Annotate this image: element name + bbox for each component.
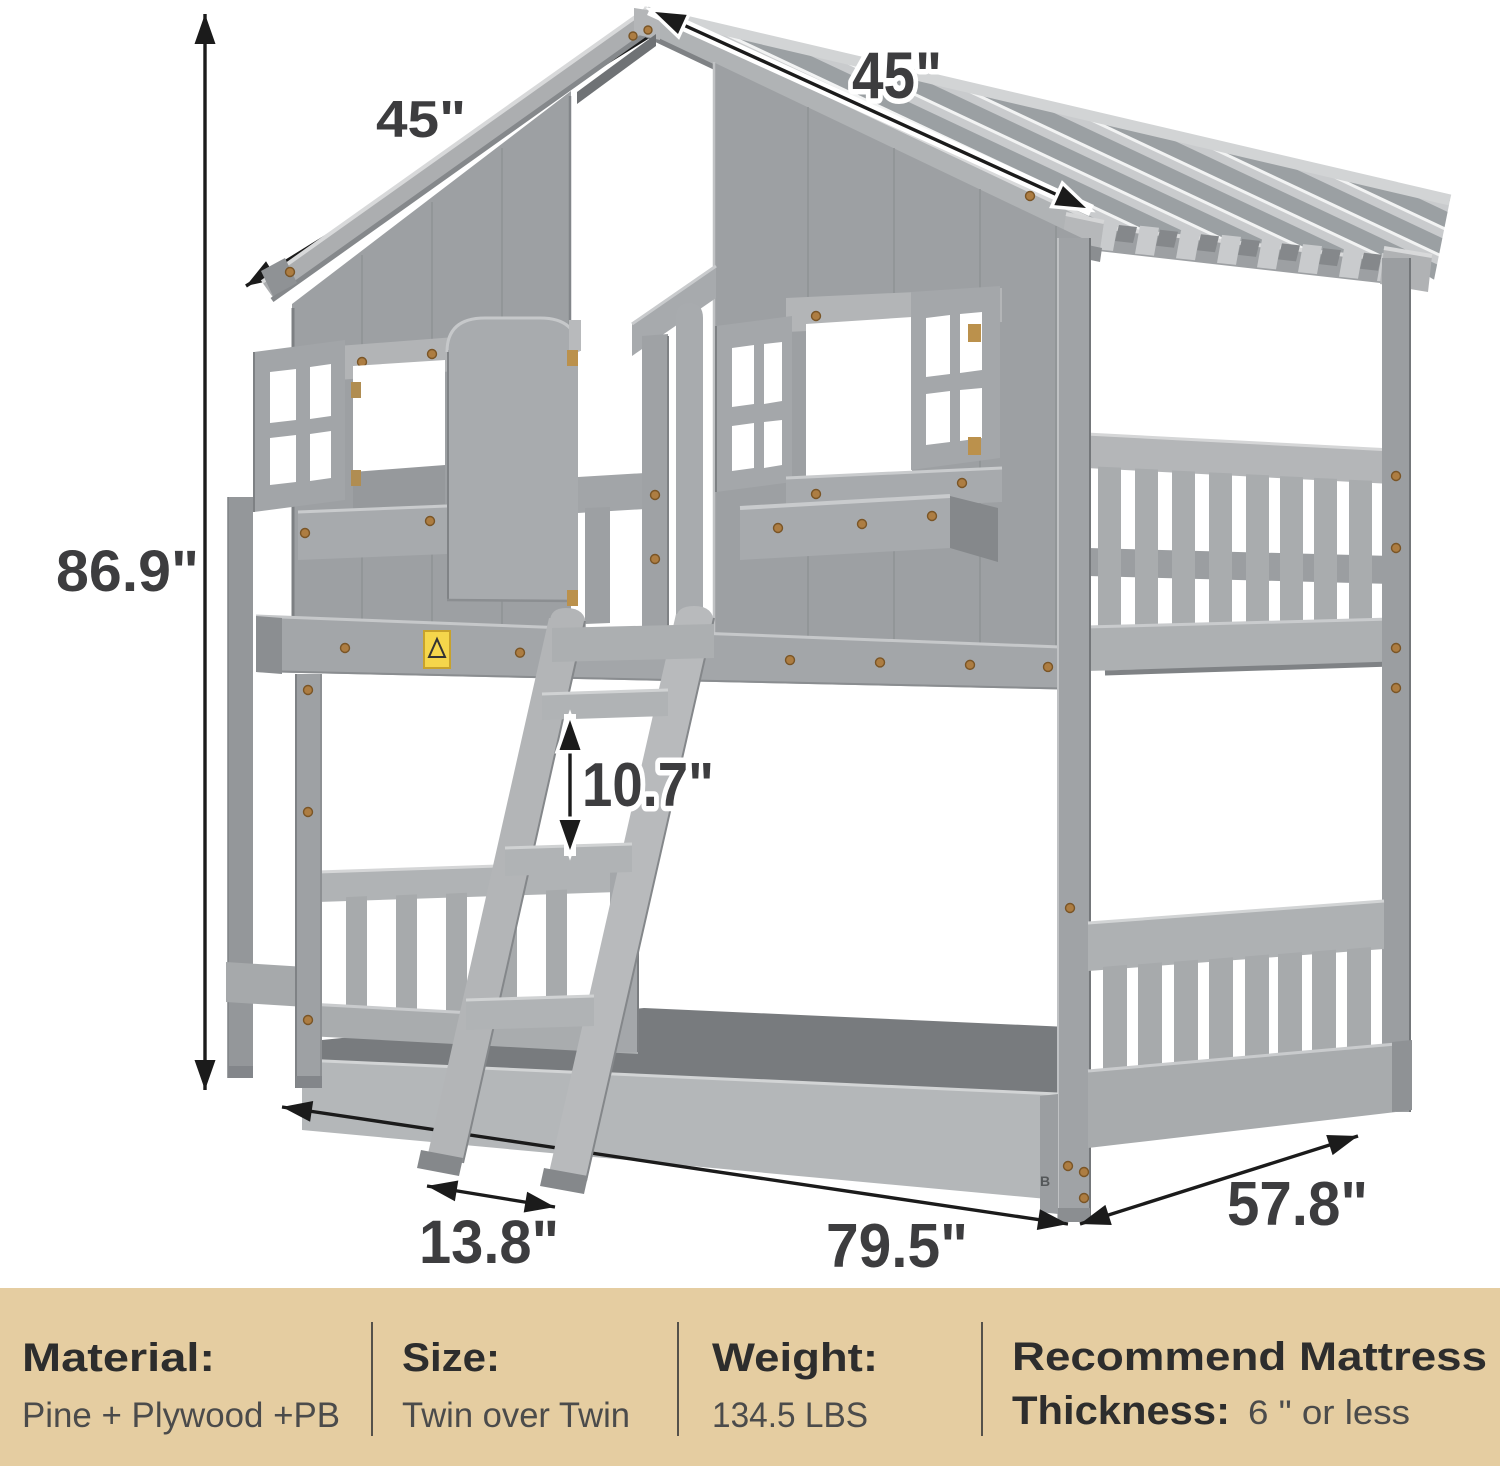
svg-text:45": 45" [852, 38, 942, 112]
svg-text:57.8": 57.8" [1227, 1170, 1368, 1239]
svg-text:Size:: Size: [402, 1336, 500, 1380]
svg-text:10.7": 10.7" [582, 751, 714, 820]
svg-text:Twin over Twin: Twin over Twin [402, 1396, 630, 1435]
svg-text:Pine + Plywood +PB: Pine + Plywood +PB [22, 1396, 340, 1435]
svg-text:79.5": 79.5" [826, 1212, 968, 1281]
svg-text:B: B [1040, 1173, 1050, 1189]
svg-text:Thickness:: Thickness: [1012, 1389, 1230, 1433]
svg-text:Recommend Mattress: Recommend Mattress [1012, 1335, 1487, 1379]
svg-text:6 " or less: 6 " or less [1248, 1394, 1410, 1432]
svg-text:Material:: Material: [22, 1336, 215, 1380]
svg-text:45": 45" [376, 91, 466, 149]
svg-text:13.8": 13.8" [419, 1208, 559, 1276]
svg-text:86.9": 86.9" [56, 539, 199, 604]
svg-text:134.5 LBS: 134.5 LBS [712, 1396, 868, 1435]
svg-text:Weight:: Weight: [712, 1336, 878, 1380]
